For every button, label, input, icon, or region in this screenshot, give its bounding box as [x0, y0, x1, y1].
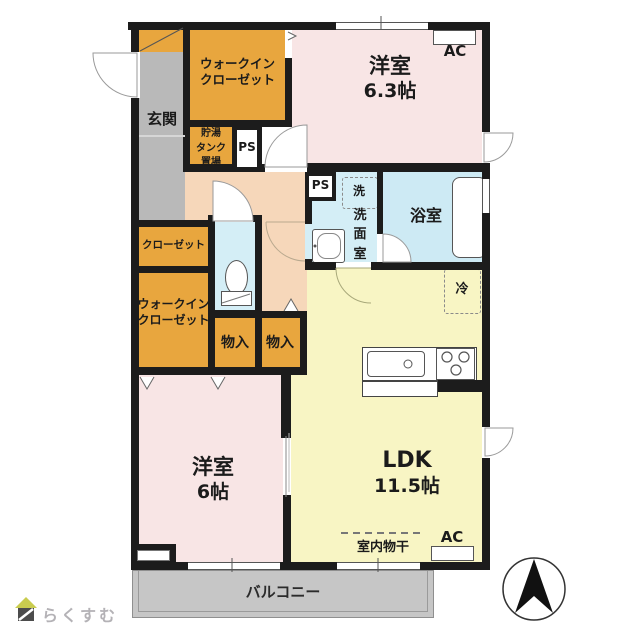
indoor-drying-label: 室内物干 — [340, 539, 426, 557]
window — [336, 22, 428, 30]
wall — [175, 562, 188, 570]
wall — [420, 562, 490, 570]
ldk-label: LDK11.5帖 — [340, 444, 474, 502]
hallway-upper — [185, 172, 307, 220]
wall — [283, 495, 291, 562]
window — [337, 562, 420, 570]
balcony-label: バルコニー — [233, 582, 333, 604]
north-arrow-icon — [503, 558, 565, 620]
genkan-label: 玄関 — [139, 110, 185, 130]
genkan-area — [139, 52, 185, 220]
wic-left-label: ウォークイン クローゼット — [137, 293, 210, 333]
stove — [436, 348, 475, 380]
vanity-basin — [317, 233, 341, 259]
bedroom-6-label: 洋室6帖 — [158, 450, 268, 508]
side-door-gap — [482, 427, 490, 458]
ac-bottom-label: AC — [430, 529, 474, 546]
wall — [253, 215, 262, 222]
wall — [438, 380, 482, 392]
wall — [482, 458, 490, 570]
window — [188, 562, 280, 570]
wall — [128, 22, 336, 30]
fridge-label: 冷 — [445, 280, 479, 300]
window — [482, 179, 490, 213]
logo-house-icon — [15, 597, 37, 621]
toilet-tank — [221, 291, 252, 306]
bathroom-label: 浴室 — [396, 206, 456, 227]
closet-label: クローゼット — [139, 238, 208, 254]
wall — [305, 262, 336, 270]
wall — [305, 199, 312, 224]
wall — [139, 220, 215, 227]
toilet-bowl — [225, 260, 248, 295]
ps-top-label: PS — [232, 139, 262, 157]
wall — [482, 22, 490, 132]
wall — [428, 22, 490, 30]
hallway-lower — [262, 220, 307, 312]
storage-2-label: 物入 — [258, 333, 302, 353]
washroom-label: 洗 面 室 — [348, 204, 372, 266]
ps-mid-label: PS — [305, 177, 336, 195]
kitchen-sink — [367, 351, 425, 377]
shoe-cabinet — [139, 27, 183, 52]
wall — [482, 163, 490, 179]
wall — [371, 262, 482, 270]
wall — [307, 163, 482, 172]
side-door-gap — [482, 132, 490, 163]
wall — [131, 22, 139, 52]
wall — [215, 310, 255, 318]
kitchen-counter-low — [362, 381, 438, 397]
entrance-door-gap — [130, 52, 140, 98]
wall — [280, 562, 337, 570]
ac-top-label: AC — [433, 43, 477, 60]
wall — [285, 58, 292, 120]
storage-1-label: 物入 — [214, 333, 256, 353]
ac-unit-bottom — [431, 546, 474, 561]
tank-label: 貯湯 タンク 置場 — [190, 126, 232, 172]
floor-plan: 玄関 ウォークイン クローゼット 貯湯 タンク 置場 PS 洋室6.3帖 AC … — [0, 0, 640, 640]
wall — [281, 368, 291, 438]
corner-window — [137, 550, 170, 561]
logo-text: らくすむ — [42, 602, 118, 626]
wall — [139, 266, 215, 273]
wall — [482, 213, 490, 427]
washer-label: 洗 — [342, 183, 376, 200]
wall — [377, 172, 383, 234]
wic-top-label: ウォークイン クローゼット — [189, 52, 286, 92]
